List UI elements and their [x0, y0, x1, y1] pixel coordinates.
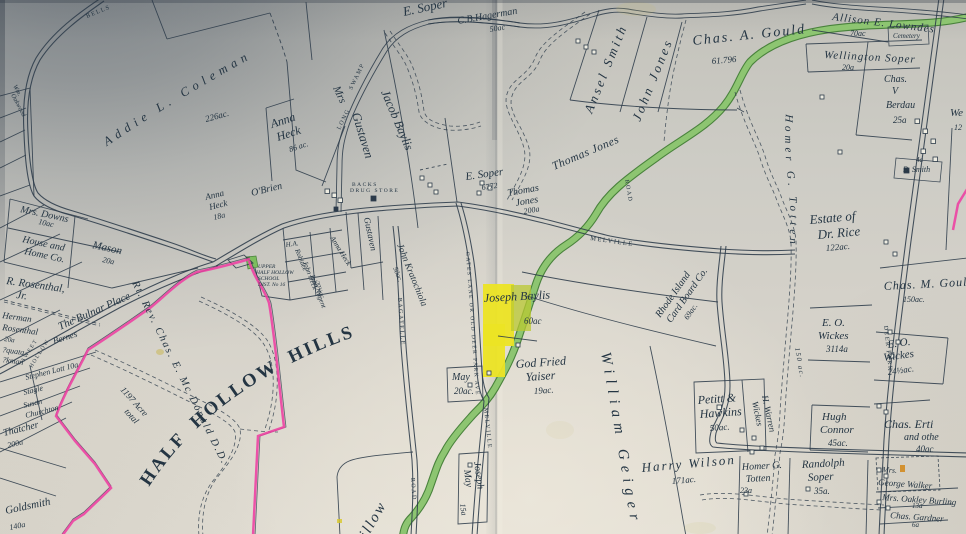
svg-text:6a: 6a — [912, 521, 920, 529]
svg-text:Hugh: Hugh — [821, 411, 847, 423]
svg-text:Soper: Soper — [808, 471, 835, 484]
svg-text:Totten: Totten — [746, 473, 771, 485]
svg-text:DIST. No 16: DIST. No 16 — [257, 282, 285, 288]
svg-text:60ac: 60ac — [524, 316, 542, 326]
svg-text:13a: 13a — [912, 502, 923, 510]
svg-text:23a: 23a — [740, 486, 752, 495]
svg-text:70ac: 70ac — [850, 29, 866, 38]
svg-text:and othe: and othe — [904, 432, 939, 443]
svg-text:25a: 25a — [893, 115, 907, 125]
svg-text:May: May — [451, 372, 470, 383]
svg-text:20a: 20a — [4, 335, 16, 344]
svg-text:40ac: 40ac — [916, 444, 934, 454]
svg-text:15a: 15a — [458, 503, 469, 516]
svg-text:Berdau: Berdau — [886, 100, 915, 111]
svg-text:20ac.: 20ac. — [454, 386, 474, 396]
svg-text:Jr.: Jr. — [16, 289, 28, 302]
svg-text:B. Smith: B. Smith — [903, 165, 930, 174]
svg-text:50ac.: 50ac. — [709, 422, 729, 433]
svg-text:Mrs.: Mrs. — [881, 465, 897, 475]
svg-text:Wickes: Wickes — [818, 330, 849, 342]
svg-text:35a.: 35a. — [813, 486, 830, 496]
svg-text:Yaiser: Yaiser — [525, 368, 556, 384]
svg-text:Connor: Connor — [820, 424, 854, 436]
svg-text:150ac.: 150ac. — [903, 295, 925, 304]
svg-text:12: 12 — [954, 123, 962, 132]
svg-text:Randolph: Randolph — [801, 457, 846, 471]
svg-text:Homer G.: Homer G. — [741, 460, 783, 473]
svg-text:19ac.: 19ac. — [533, 385, 553, 396]
svg-text:20a: 20a — [842, 63, 854, 72]
svg-text:122ac.: 122ac. — [825, 241, 850, 253]
svg-text:3114a: 3114a — [825, 344, 848, 354]
svg-text:We: We — [950, 107, 963, 119]
svg-text:Chas. Erti: Chas. Erti — [884, 417, 933, 431]
svg-text:171ac.: 171ac. — [671, 474, 696, 486]
svg-text:4a: 4a — [916, 156, 924, 164]
svg-text:Cemetery: Cemetery — [893, 32, 921, 40]
svg-text:DRUG STORE: DRUG STORE — [350, 188, 399, 194]
svg-text:Chas.: Chas. — [884, 74, 907, 85]
svg-text:E. O.: E. O. — [821, 317, 845, 329]
svg-text:45ac.: 45ac. — [828, 438, 848, 448]
